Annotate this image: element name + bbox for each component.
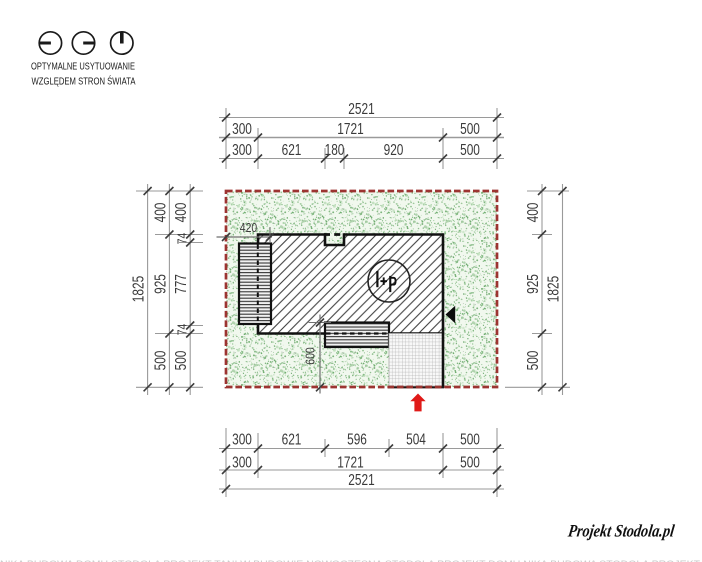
svg-text:1825: 1825 bbox=[131, 276, 148, 302]
svg-text:300: 300 bbox=[232, 455, 252, 472]
svg-text:2521: 2521 bbox=[348, 472, 374, 489]
svg-text:504: 504 bbox=[406, 432, 426, 449]
svg-text:600: 600 bbox=[303, 347, 318, 364]
svg-text:1721: 1721 bbox=[337, 455, 363, 472]
svg-text:400: 400 bbox=[173, 203, 190, 223]
svg-text:300: 300 bbox=[232, 142, 252, 159]
svg-text:WZGLĘDEM STRON ŚWIATA: WZGLĘDEM STRON ŚWIATA bbox=[32, 75, 136, 88]
svg-text:300: 300 bbox=[232, 121, 252, 138]
svg-text:400: 400 bbox=[152, 203, 169, 223]
svg-text:925: 925 bbox=[525, 274, 542, 294]
svg-text:1721: 1721 bbox=[337, 121, 363, 138]
svg-text:2521: 2521 bbox=[348, 101, 374, 118]
svg-text:420: 420 bbox=[240, 220, 257, 235]
svg-text:74: 74 bbox=[175, 324, 190, 336]
svg-text:621: 621 bbox=[282, 142, 302, 159]
svg-text:500: 500 bbox=[173, 351, 190, 371]
svg-text:500: 500 bbox=[460, 455, 480, 472]
svg-text:596: 596 bbox=[347, 432, 367, 449]
svg-text:920: 920 bbox=[384, 142, 404, 159]
svg-text:300: 300 bbox=[232, 432, 252, 449]
svg-text:Projekt Stodola.pl: Projekt Stodola.pl bbox=[566, 521, 676, 541]
svg-text:500: 500 bbox=[460, 142, 480, 159]
svg-text:500: 500 bbox=[152, 351, 169, 371]
svg-text:400: 400 bbox=[525, 203, 542, 223]
svg-text:180: 180 bbox=[325, 142, 345, 159]
svg-text:621: 621 bbox=[282, 432, 302, 449]
svg-text:OPTYMALNE USYTUOWANIE: OPTYMALNE USYTUOWANIE bbox=[31, 61, 135, 73]
svg-text:500: 500 bbox=[460, 432, 480, 449]
svg-text:500: 500 bbox=[460, 121, 480, 138]
svg-text:1825: 1825 bbox=[546, 276, 563, 302]
svg-text:74: 74 bbox=[175, 233, 190, 245]
svg-text:777: 777 bbox=[173, 274, 190, 294]
svg-text:500: 500 bbox=[525, 351, 542, 371]
svg-text:925: 925 bbox=[152, 274, 169, 294]
